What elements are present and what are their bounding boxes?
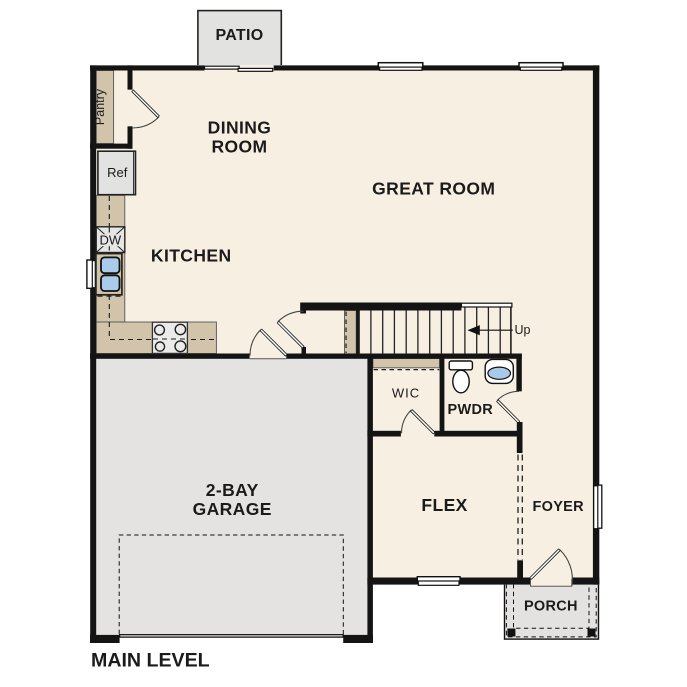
svg-text:ROOM: ROOM xyxy=(211,137,267,157)
svg-text:MAIN LEVEL: MAIN LEVEL xyxy=(91,650,210,672)
svg-text:FOYER: FOYER xyxy=(532,499,584,515)
svg-text:GREAT ROOM: GREAT ROOM xyxy=(372,178,495,198)
svg-text:2-BAY: 2-BAY xyxy=(206,480,259,500)
svg-text:KITCHEN: KITCHEN xyxy=(151,245,232,265)
svg-text:PWDR: PWDR xyxy=(448,402,494,418)
svg-text:WIC: WIC xyxy=(392,386,420,401)
svg-text:Pantry: Pantry xyxy=(93,88,107,125)
svg-text:PATIO: PATIO xyxy=(215,27,263,44)
svg-text:DW: DW xyxy=(99,233,121,248)
svg-text:Up: Up xyxy=(515,323,531,337)
svg-text:DINING: DINING xyxy=(208,118,272,138)
svg-text:GARAGE: GARAGE xyxy=(193,499,272,519)
svg-text:PORCH: PORCH xyxy=(524,598,578,614)
svg-text:Ref: Ref xyxy=(107,165,128,180)
svg-text:FLEX: FLEX xyxy=(421,495,467,515)
